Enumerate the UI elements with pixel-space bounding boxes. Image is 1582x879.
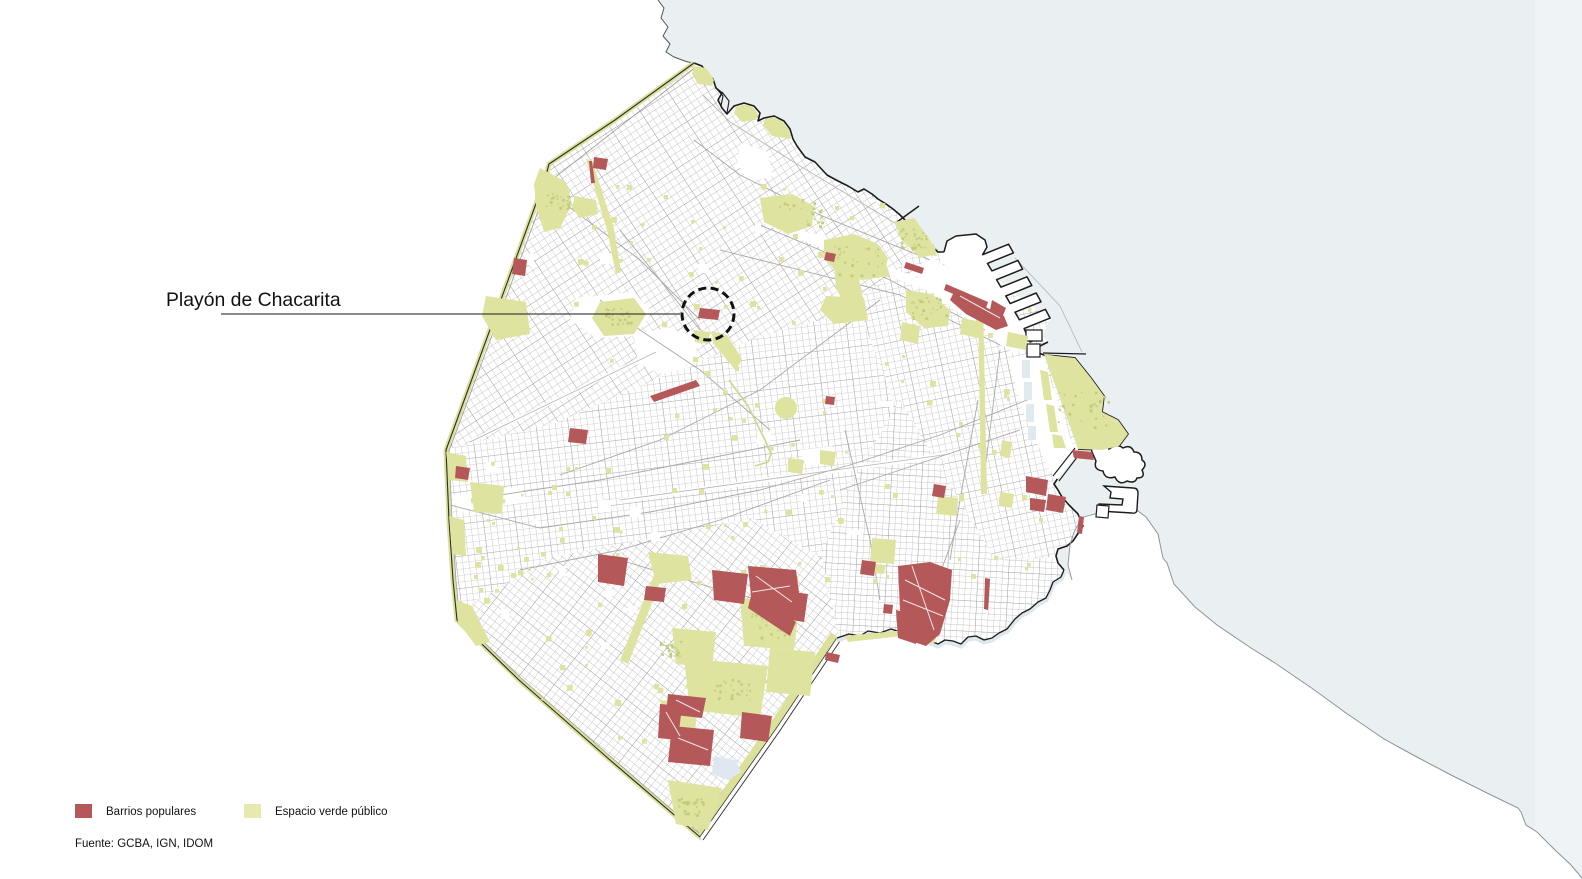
svg-text:Playón de Chacarita: Playón de Chacarita — [166, 289, 341, 311]
svg-text:Espacio verde público: Espacio verde público — [275, 806, 388, 818]
svg-text:Fuente: GCBA, IGN, IDOM: Fuente: GCBA, IGN, IDOM — [75, 838, 213, 850]
svg-text:Barrios populares: Barrios populares — [106, 806, 196, 818]
